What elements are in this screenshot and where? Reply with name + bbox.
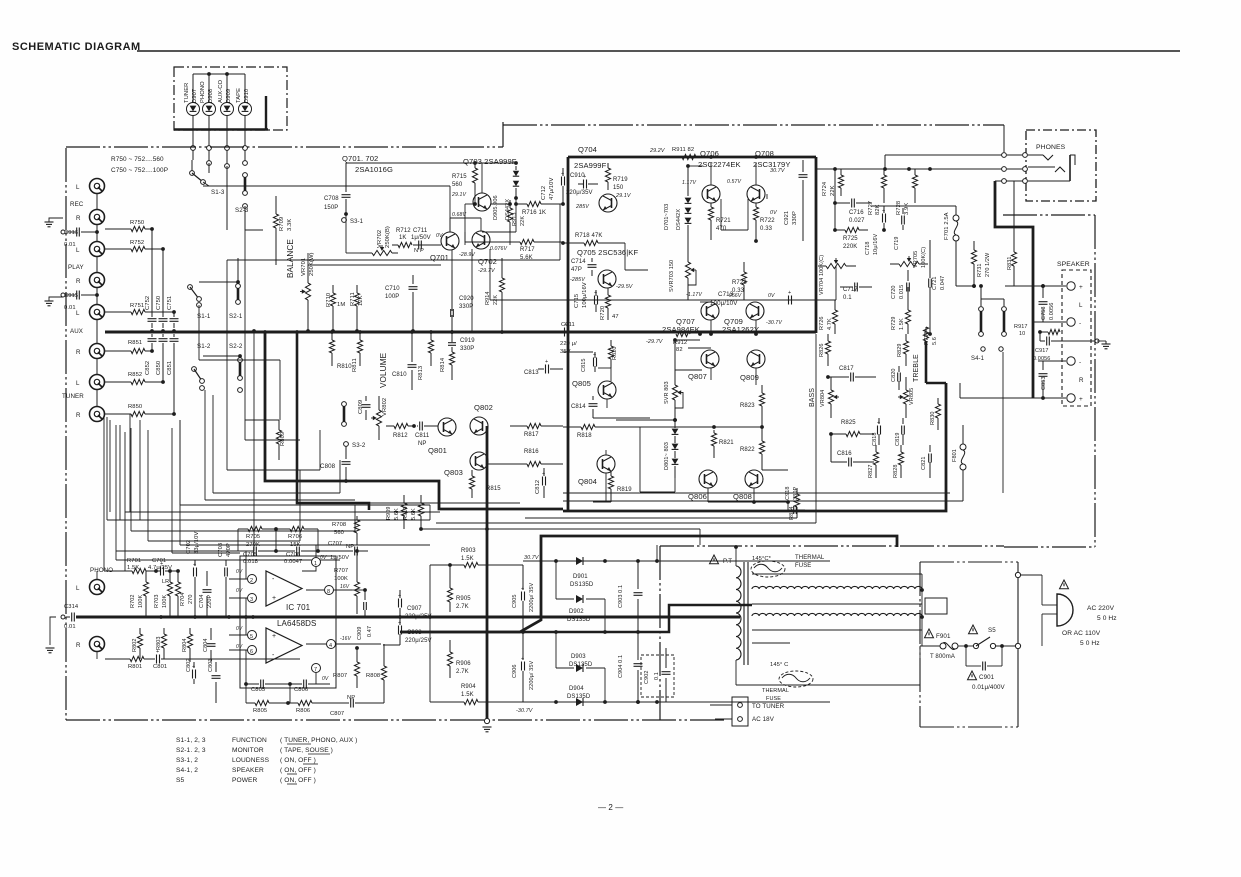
svg-text:-29.7V: -29.7V [478, 268, 496, 274]
svg-text:270: 270 [188, 595, 194, 604]
svg-text:R825: R825 [841, 420, 856, 426]
svg-text:( ON, OFF ): ( ON, OFF ) [280, 777, 316, 784]
svg-text:C904 0.1: C904 0.1 [618, 655, 624, 678]
svg-text:30.7V: 30.7V [524, 555, 540, 561]
svg-text:F801: F801 [952, 449, 958, 462]
svg-text:Q802: Q802 [474, 403, 493, 412]
svg-text:-29.7V: -29.7V [646, 339, 664, 345]
svg-text:+: + [192, 664, 195, 670]
svg-text:285V: 285V [575, 204, 590, 210]
svg-text:C817: C817 [839, 366, 854, 372]
svg-text:0V: 0V [236, 588, 243, 594]
svg-text:2.7K: 2.7K [456, 669, 469, 675]
svg-text:+: + [545, 359, 548, 365]
svg-text:PHONO: PHONO [200, 81, 206, 103]
svg-text:R850: R850 [128, 404, 142, 410]
svg-text:S2-1: S2-1 [229, 313, 243, 320]
svg-text:C852: C852 [145, 361, 151, 375]
svg-text:1.5K: 1.5K [127, 565, 139, 571]
svg-text:NP: NP [346, 544, 354, 550]
svg-text:270K: 270K [246, 542, 260, 548]
svg-text:R731: R731 [977, 263, 983, 277]
svg-text:AC 18V: AC 18V [752, 716, 775, 723]
svg-text:OR AC 110V: OR AC 110V [1062, 630, 1101, 637]
svg-text:100K(C): 100K(C) [921, 247, 927, 268]
svg-text:560: 560 [452, 182, 463, 188]
svg-text:TUNER: TUNER [62, 393, 84, 400]
svg-text:C702: C702 [186, 540, 192, 554]
svg-text:C821: C821 [921, 456, 927, 470]
svg-text:R712: R712 [396, 228, 411, 234]
svg-text:R727: R727 [868, 201, 874, 215]
svg-text:250K(W): 250K(W) [309, 252, 315, 276]
svg-text:D902: D902 [569, 609, 584, 615]
svg-text:47: 47 [612, 314, 619, 320]
svg-text:+: + [193, 562, 196, 568]
svg-text:1μ/50V: 1μ/50V [411, 235, 431, 241]
svg-text:R750 ~ 752....560: R750 ~ 752....560 [111, 156, 164, 163]
svg-text:L: L [1079, 302, 1083, 309]
svg-text:C720: C720 [891, 285, 897, 299]
svg-text:8: 8 [327, 589, 330, 595]
svg-text:R811: R811 [352, 358, 358, 372]
svg-text:R827: R827 [868, 464, 874, 478]
svg-text:5.6: 5.6 [932, 337, 938, 345]
svg-text:C815: C815 [581, 358, 587, 372]
svg-text:N P: N P [414, 248, 424, 254]
svg-text:Q805: Q805 [572, 379, 591, 388]
svg-text:MONITOR: MONITOR [232, 747, 264, 754]
svg-text:100K: 100K [334, 576, 348, 582]
svg-text:R904: R904 [461, 684, 476, 690]
svg-text:0.57V: 0.57V [727, 179, 741, 185]
svg-text:C901: C901 [979, 674, 995, 681]
svg-text:5: 5 [250, 634, 253, 640]
svg-text:10: 10 [1019, 331, 1025, 337]
svg-text:C714: C714 [571, 259, 586, 265]
svg-text:1.5K: 1.5K [461, 556, 474, 562]
svg-text:TUNER: TUNER [184, 83, 190, 103]
svg-text:TO TUNER: TO TUNER [752, 703, 785, 710]
svg-text:C711: C711 [413, 228, 428, 234]
svg-text:R819: R819 [617, 487, 632, 493]
svg-text:+: + [561, 171, 564, 177]
svg-text:R806: R806 [296, 708, 310, 714]
svg-text:C716: C716 [849, 210, 864, 216]
svg-text:C853: C853 [1041, 376, 1047, 390]
svg-text:LR: LR [162, 579, 169, 585]
svg-text:0.01: 0.01 [64, 242, 76, 248]
svg-text:S3-1, 2: S3-1, 2 [176, 757, 198, 764]
svg-text:-29.5V: -29.5V [616, 284, 634, 290]
svg-text:220P: 220P [207, 595, 213, 608]
svg-text:L: L [76, 380, 80, 387]
svg-text:-: - [1079, 359, 1081, 366]
svg-text:S5: S5 [988, 627, 996, 634]
svg-text:( TAPE, SOUSE ): ( TAPE, SOUSE ) [280, 747, 333, 754]
svg-text:SVR 803: SVR 803 [664, 381, 670, 404]
svg-text:0.01: 0.01 [64, 305, 76, 311]
svg-text:2SC2274EK: 2SC2274EK [698, 160, 741, 169]
svg-text:R808: R808 [366, 673, 380, 679]
svg-text:0V: 0V [320, 555, 327, 561]
svg-text:C916: C916 [64, 230, 78, 236]
svg-text:R814: R814 [440, 357, 446, 372]
svg-text:R903: R903 [461, 548, 476, 554]
svg-text:0.01: 0.01 [64, 624, 76, 630]
svg-text:Q703 2SA999F: Q703 2SA999F [463, 157, 517, 166]
svg-text:0V: 0V [236, 569, 243, 575]
svg-text:30.7V: 30.7V [770, 168, 786, 174]
svg-text:R816: R816 [524, 449, 539, 455]
svg-text:0.027: 0.027 [849, 218, 865, 224]
svg-text:R821: R821 [719, 440, 734, 446]
svg-text:L: L [76, 184, 80, 191]
svg-text:R724: R724 [822, 181, 828, 196]
svg-text:S3-2: S3-2 [352, 442, 366, 449]
svg-text:SVR703 150: SVR703 150 [669, 260, 675, 292]
svg-text:29.1V: 29.1V [451, 192, 466, 198]
svg-text:Q807: Q807 [688, 372, 707, 381]
svg-text:PLAY: PLAY [68, 264, 84, 271]
svg-text:100μ/16V: 100μ/16V [582, 282, 588, 308]
svg-text:C808: C808 [320, 463, 336, 470]
svg-text:— 2 —: — 2 — [598, 803, 623, 812]
svg-text:C708: C708 [324, 196, 339, 202]
svg-text:L: L [76, 247, 80, 254]
svg-text:VR802: VR802 [382, 398, 388, 416]
svg-text:1μ/50V: 1μ/50V [330, 555, 349, 561]
svg-text:R831: R831 [1007, 256, 1013, 270]
svg-text:R802: R802 [132, 638, 138, 652]
svg-text:100K: 100K [162, 595, 168, 608]
svg-text:R702: R702 [130, 594, 136, 608]
svg-text:C921: C921 [784, 211, 790, 225]
svg-text:R701: R701 [127, 558, 141, 564]
svg-text:C706: C706 [286, 552, 300, 558]
svg-text:2: 2 [250, 578, 253, 584]
svg-text:C813: C813 [524, 370, 539, 376]
svg-text:R906: R906 [456, 661, 471, 667]
svg-text:+: + [160, 561, 163, 567]
svg-text:D904: D904 [569, 686, 584, 692]
svg-text:R826: R826 [819, 343, 825, 357]
svg-text:R805: R805 [253, 708, 267, 714]
svg-text:C850: C850 [156, 361, 162, 375]
svg-text:C721: C721 [932, 276, 938, 290]
svg-text:C713: C713 [718, 291, 734, 298]
svg-text:R911 82: R911 82 [672, 147, 694, 153]
svg-text:250K(B): 250K(B) [385, 226, 391, 248]
svg-text:+: + [156, 649, 159, 655]
svg-text:R729: R729 [891, 316, 897, 330]
svg-text:+: + [272, 633, 276, 640]
svg-text:3.9K: 3.9K [904, 203, 910, 215]
svg-text:C751: C751 [167, 296, 173, 310]
svg-text:C851: C851 [167, 361, 173, 375]
svg-text:F701 2.5A: F701 2.5A [944, 212, 950, 240]
svg-text:R721: R721 [716, 218, 731, 224]
svg-text:S3-1: S3-1 [350, 219, 364, 225]
svg-text:R815: R815 [486, 486, 501, 492]
svg-text:S2-1. 2, 3: S2-1. 2, 3 [176, 747, 206, 754]
svg-text:LA6458DS: LA6458DS [277, 619, 317, 628]
svg-text:FUSE: FUSE [795, 563, 811, 569]
svg-text:C902: C902 [644, 670, 650, 684]
svg-text:R708: R708 [332, 522, 346, 528]
svg-text:0.047: 0.047 [940, 276, 946, 290]
svg-text:C707: C707 [328, 541, 342, 547]
svg-text:R905: R905 [456, 596, 471, 602]
svg-text:Q701. 702: Q701. 702 [342, 154, 378, 163]
svg-text:C820: C820 [891, 368, 897, 382]
svg-text:5.6K: 5.6K [394, 508, 400, 520]
svg-text:S4-1, 2: S4-1, 2 [176, 767, 198, 774]
svg-text:T 800mA: T 800mA [930, 654, 955, 660]
svg-text:-30.7V: -30.7V [766, 320, 782, 326]
svg-text:( ON, OFF ): ( ON, OFF ) [280, 767, 316, 774]
svg-text:R720: R720 [600, 306, 606, 320]
svg-text:R: R [76, 215, 81, 222]
svg-text:BALANCE: BALANCE [286, 239, 295, 278]
svg-text:VR805: VR805 [909, 388, 915, 405]
svg-text:100P: 100P [385, 294, 399, 300]
svg-text:C917: C917 [1035, 348, 1049, 354]
svg-text:R711: R711 [350, 292, 356, 306]
svg-text:R828: R828 [893, 464, 899, 478]
svg-text:220μ/35V: 220μ/35V [566, 190, 593, 196]
svg-text:0V: 0V [322, 676, 329, 682]
svg-text:VR705: VR705 [913, 251, 919, 268]
svg-text:10μ/16V: 10μ/16V [873, 233, 879, 255]
svg-text:R705: R705 [246, 534, 260, 540]
svg-text:5 0 Hz: 5 0 Hz [1097, 615, 1117, 622]
svg-text:POWER: POWER [232, 777, 258, 784]
svg-text:R913: R913 [512, 212, 518, 226]
svg-text:Q804: Q804 [578, 477, 597, 486]
svg-text:NP: NP [418, 441, 427, 447]
svg-text:0.0056: 0.0056 [1049, 303, 1055, 320]
svg-text:330P: 330P [459, 304, 473, 310]
svg-text:R715: R715 [452, 174, 467, 180]
svg-text:AUX-CO: AUX-CO [218, 79, 224, 103]
svg-text:150: 150 [613, 185, 624, 191]
svg-text:R707: R707 [334, 568, 348, 574]
svg-text:C715: C715 [574, 294, 580, 308]
svg-text:R803: R803 [156, 636, 162, 650]
svg-text:D701~703: D701~703 [664, 204, 670, 230]
svg-text:R752: R752 [130, 240, 144, 246]
svg-text:R810: R810 [337, 364, 352, 370]
svg-text:330P: 330P [460, 346, 474, 352]
svg-text:R820: R820 [612, 346, 618, 360]
svg-text:C718: C718 [865, 241, 871, 255]
svg-text:5.6K: 5.6K [520, 255, 533, 261]
svg-text:R807: R807 [333, 673, 347, 679]
svg-text:0.0047: 0.0047 [284, 559, 302, 565]
svg-text:C816: C816 [837, 451, 852, 457]
svg-text:R851: R851 [128, 340, 142, 346]
svg-text:R704: R704 [180, 592, 186, 606]
svg-text:47P: 47P [571, 267, 582, 273]
svg-text:Q704: Q704 [578, 145, 597, 154]
svg-text:R829: R829 [897, 343, 903, 357]
svg-text:R801: R801 [128, 664, 142, 670]
svg-text:0V: 0V [768, 293, 775, 299]
svg-text:47μ/10V: 47μ/10V [549, 178, 555, 200]
svg-text:S1-3: S1-3 [211, 189, 225, 196]
svg-text:C750 ~ 752....100P: C750 ~ 752....100P [111, 167, 168, 174]
svg-text:1.5K: 1.5K [461, 692, 474, 698]
svg-text:FUSE: FUSE [766, 696, 781, 702]
svg-text:R852: R852 [128, 372, 142, 378]
svg-text:R818: R818 [577, 433, 592, 439]
svg-text:( TUNER, PHONO, AUX ): ( TUNER, PHONO, AUX ) [280, 737, 357, 744]
svg-text:330P: 330P [792, 211, 798, 225]
svg-text:33μ/10V: 33μ/10V [194, 532, 200, 554]
svg-text:DS135D: DS135D [567, 617, 591, 623]
svg-text:+: + [877, 420, 880, 426]
svg-text:S2-2: S2-2 [229, 343, 243, 350]
svg-text:-: - [1079, 320, 1081, 327]
svg-text:R717: R717 [520, 247, 535, 253]
svg-text:0V: 0V [236, 644, 243, 650]
svg-text:( ON, OFF ): ( ON, OFF ) [280, 757, 316, 764]
svg-text:LOUDNESS: LOUDNESS [232, 757, 270, 764]
svg-text:+: + [542, 471, 545, 477]
svg-text:R804: R804 [182, 638, 188, 652]
svg-text:C819: C819 [895, 432, 901, 446]
svg-text:PHONES: PHONES [1036, 144, 1066, 151]
svg-text:R718 47K: R718 47K [575, 233, 603, 239]
svg-text:4: 4 [329, 643, 332, 649]
svg-text:+: + [1079, 396, 1083, 403]
svg-text:C907: C907 [407, 606, 422, 612]
svg-text:THERMAL: THERMAL [762, 688, 789, 694]
svg-text:0.018: 0.018 [243, 559, 258, 565]
svg-text:16V: 16V [340, 584, 350, 590]
svg-text:DS135D: DS135D [570, 582, 594, 588]
svg-text:4.7K: 4.7K [827, 318, 833, 330]
svg-text:0V: 0V [236, 626, 243, 632]
svg-text:R: R [76, 642, 81, 649]
svg-text:0.33: 0.33 [760, 226, 773, 232]
svg-text:5.6K: 5.6K [411, 508, 417, 520]
svg-text:C811: C811 [415, 433, 430, 439]
svg-text:C909: C909 [357, 626, 363, 640]
svg-text:220 μ/: 220 μ/ [560, 341, 577, 347]
svg-text:29.2V: 29.2V [649, 148, 666, 154]
svg-text:1: 1 [314, 561, 317, 567]
svg-text:C752: C752 [145, 296, 151, 310]
svg-text:P.T: P.T [723, 558, 732, 565]
svg-text:0.68V: 0.68V [452, 212, 466, 218]
svg-text:TREBLE: TREBLE [913, 354, 920, 382]
svg-text:0.1: 0.1 [654, 672, 660, 680]
svg-text:THERMAL: THERMAL [795, 555, 825, 561]
svg-text:5 0 Hz: 5 0 Hz [1080, 640, 1100, 647]
svg-text:C314: C314 [64, 604, 79, 610]
svg-text:SPEAKER: SPEAKER [1057, 261, 1090, 268]
svg-text:R703: R703 [154, 594, 160, 608]
svg-text:Q701: Q701 [430, 253, 449, 262]
svg-text:C704: C704 [199, 594, 205, 608]
svg-text:3.3K: 3.3K [287, 219, 293, 231]
svg-text:22K: 22K [520, 216, 526, 226]
svg-text:-1.17V: -1.17V [686, 292, 702, 298]
svg-text:Q702: Q702 [478, 257, 497, 266]
svg-text:S4-1: S4-1 [971, 356, 985, 362]
svg-text:D901: D901 [573, 574, 588, 580]
svg-text:S1-1, 2, 3: S1-1, 2, 3 [176, 737, 206, 744]
svg-text:R719: R719 [613, 177, 628, 183]
svg-text:R813: R813 [418, 366, 424, 380]
svg-text:0.01μ/400V: 0.01μ/400V [972, 684, 1006, 691]
svg-text:R914: R914 [485, 291, 491, 305]
svg-text:0.0056: 0.0056 [1033, 356, 1050, 362]
svg-text:R722: R722 [760, 218, 775, 224]
svg-text:DS442X: DS442X [676, 209, 682, 230]
svg-text:C801: C801 [153, 664, 167, 670]
svg-text:C703: C703 [218, 543, 224, 557]
svg-text:R751: R751 [130, 303, 144, 309]
svg-text:R728: R728 [896, 201, 902, 215]
svg-text:C803: C803 [208, 658, 214, 672]
svg-text:C717: C717 [843, 287, 858, 293]
svg-text:R706: R706 [288, 534, 302, 540]
svg-text:0.076V: 0.076V [490, 246, 507, 252]
svg-text:12K: 12K [358, 295, 364, 306]
svg-text:TAPE: TAPE [236, 88, 242, 103]
svg-text:R725: R725 [843, 236, 858, 242]
svg-text:R917: R917 [1014, 324, 1028, 330]
svg-text:2200μ/ 35V: 2200μ/ 35V [529, 583, 535, 612]
svg-text:R: R [1079, 377, 1084, 384]
svg-text:C903 0.1: C903 0.1 [618, 585, 624, 608]
svg-text:-28.9V: -28.9V [459, 252, 475, 258]
svg-text:100K: 100K [138, 595, 144, 608]
svg-text:220μ/25V: 220μ/25V [405, 638, 432, 644]
svg-text:R709: R709 [279, 217, 285, 231]
svg-text:-16V: -16V [340, 636, 352, 642]
svg-text:C812: C812 [535, 480, 541, 494]
svg-text:REC: REC [70, 201, 84, 208]
svg-text:AUX: AUX [70, 328, 83, 335]
svg-text:SCHEMATIC DIAGRAM: SCHEMATIC DIAGRAM [12, 41, 141, 53]
svg-text:C905: C905 [512, 594, 518, 608]
svg-text:-285V: -285V [570, 277, 586, 283]
svg-text:1.17V: 1.17V [682, 180, 696, 186]
svg-text:S5: S5 [176, 777, 184, 784]
svg-text:270 1/2W: 270 1/2W [985, 252, 991, 277]
svg-text:150P: 150P [324, 205, 338, 211]
svg-text:R726: R726 [819, 316, 825, 330]
svg-text:220K: 220K [843, 244, 857, 250]
svg-text:C915: C915 [64, 293, 78, 299]
svg-text:D903: D903 [571, 654, 586, 660]
svg-text:-30.7V: -30.7V [516, 708, 534, 714]
svg-text:VOLUME: VOLUME [379, 352, 388, 388]
svg-text:BASS: BASS [809, 388, 816, 407]
svg-text:C919: C919 [460, 338, 475, 344]
svg-text:+: + [564, 322, 567, 328]
svg-text:7: 7 [314, 667, 317, 673]
svg-text:C712: C712 [541, 186, 547, 200]
svg-text:Q801: Q801 [428, 446, 447, 455]
svg-text:29.1V: 29.1V [615, 193, 632, 199]
svg-text:L: L [76, 585, 80, 592]
svg-text:0.015: 0.015 [899, 285, 905, 299]
